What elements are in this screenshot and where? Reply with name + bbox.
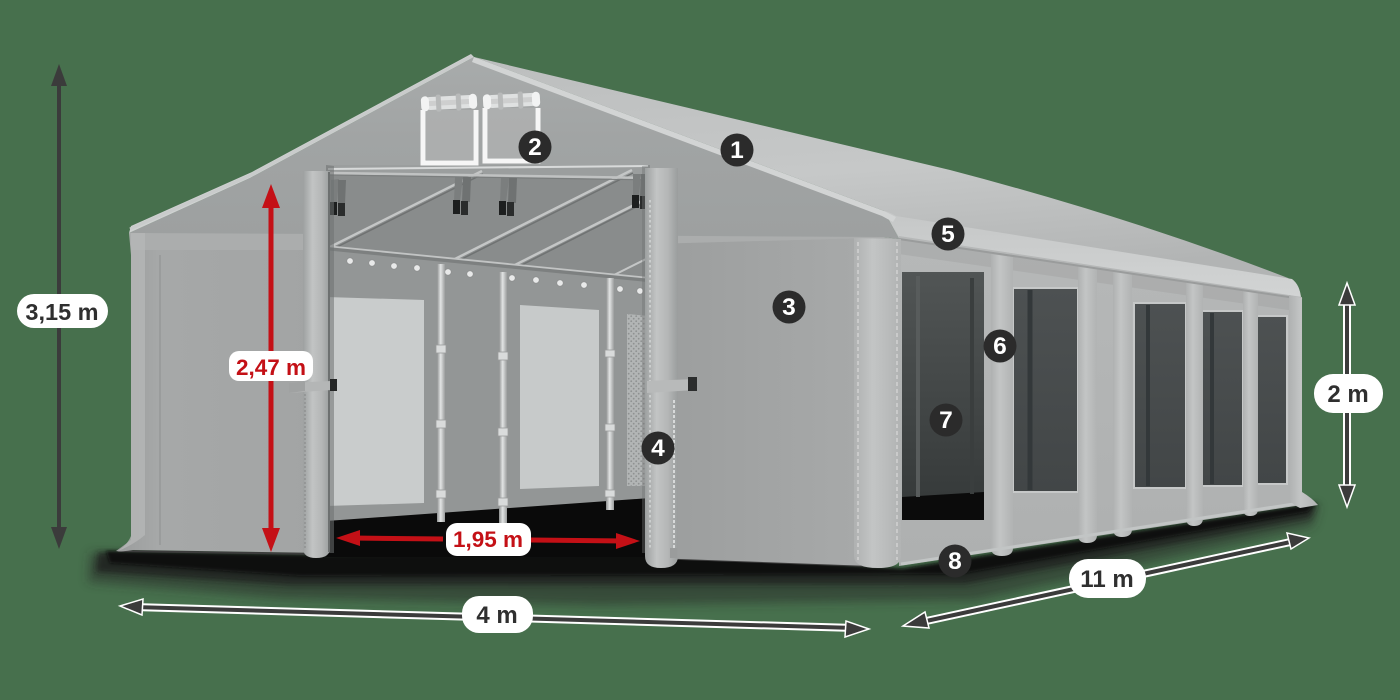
- svg-text:8: 8: [948, 548, 962, 575]
- svg-text:5: 5: [941, 221, 955, 248]
- svg-text:11 m: 11 m: [1080, 566, 1133, 593]
- svg-text:3: 3: [782, 294, 796, 321]
- svg-text:2: 2: [528, 134, 542, 161]
- svg-text:1,95 m: 1,95 m: [453, 527, 523, 552]
- svg-text:1: 1: [730, 137, 744, 164]
- svg-text:2,47 m: 2,47 m: [236, 355, 306, 380]
- svg-text:2 m: 2 m: [1327, 381, 1368, 408]
- svg-text:4: 4: [651, 435, 665, 462]
- svg-text:6: 6: [993, 333, 1007, 360]
- svg-text:4 m: 4 m: [476, 602, 517, 629]
- svg-text:3,15 m: 3,15 m: [25, 299, 98, 325]
- svg-text:7: 7: [939, 407, 953, 434]
